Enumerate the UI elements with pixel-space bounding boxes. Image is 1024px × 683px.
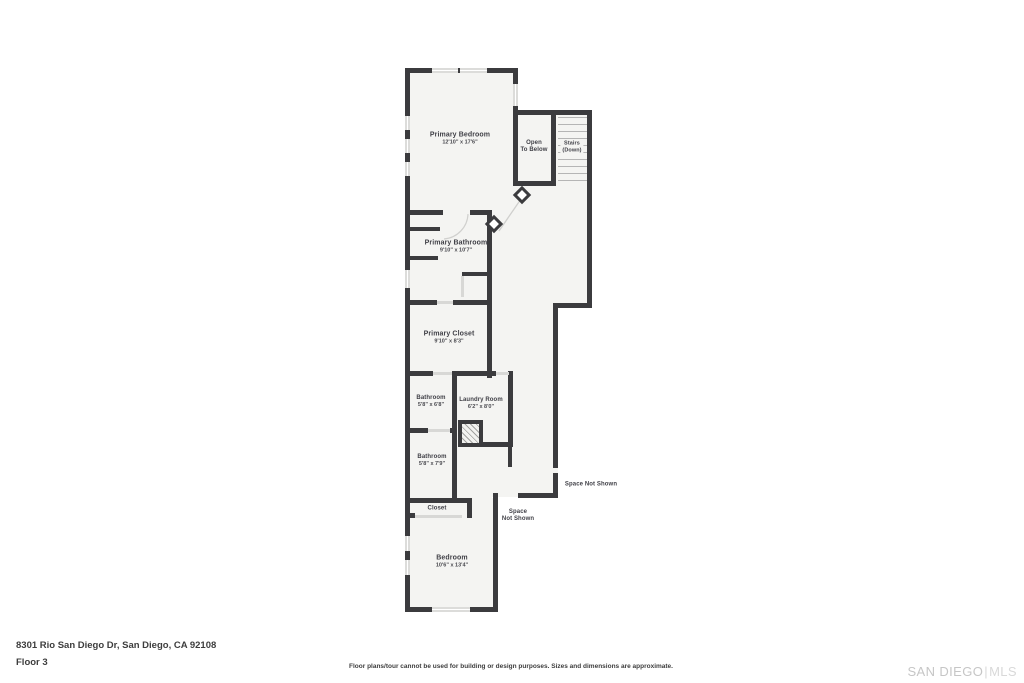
room-label-bedroom: Bedroom 10'6" x 13'4" [436,554,468,569]
room-dims: 5'8" x 6'8" [416,402,445,409]
label-space-not-shown-below: Space Not Shown [502,509,534,523]
room-name: Closet [428,505,447,512]
room-name: Bathroom [416,395,445,402]
floor-plan-page: Primary Bedroom 12'10" x 17'6" Open To B… [0,0,1024,683]
room-name: Primary Bedroom [430,131,490,139]
property-address: 8301 Rio San Diego Dr, San Diego, CA 921… [16,640,216,651]
room-name: Bedroom [436,554,468,562]
room-dims: 6'2" x 8'0" [459,404,503,411]
room-name: Primary Closet [424,330,475,338]
room-name: Bathroom [417,454,446,461]
room-dims: 9'10" x 10'7" [425,248,488,255]
floor-number-label: Floor 3 [16,657,48,668]
room-dims: 5'8" x 7'9" [417,461,446,468]
room-label-closet: Closet [428,505,447,512]
room-label-bathroom-lower: Bathroom 5'8" x 7'9" [417,454,446,468]
watermark-divider: | [984,664,988,679]
room-label-primary-bathroom: Primary Bathroom 9'10" x 10'7" [425,239,488,254]
label-open-to-below: Open To Below [520,140,547,154]
watermark-secondary: MLS [989,664,1017,679]
room-name: Primary Bathroom [425,239,488,247]
room-label-primary-closet: Primary Closet 9'10" x 8'3" [424,330,475,345]
room-label-laundry-room: Laundry Room 6'2" x 8'0" [459,397,503,411]
utility-chase-hatch [458,420,483,447]
disclaimer-text: Floor plans/tour cannot be used for buil… [349,663,673,670]
label-stairs-down: Stairs (Down) [560,140,583,153]
floor-plan-drawing [0,0,1024,683]
room-label-bathroom-upper: Bathroom 5'8" x 6'8" [416,395,445,409]
watermark-primary: SAN DIEGO [907,664,983,679]
label-space-not-shown-right: Space Not Shown [565,481,617,488]
room-dims: 10'6" x 13'4" [436,563,468,570]
room-dims: 9'10" x 8'3" [424,339,475,346]
room-name: Laundry Room [459,397,503,404]
room-dims: 12'10" x 17'6" [430,140,490,147]
sandiego-mls-watermark: SAN DIEGO|MLS [907,664,1017,679]
room-label-primary-bedroom: Primary Bedroom 12'10" x 17'6" [430,131,490,146]
